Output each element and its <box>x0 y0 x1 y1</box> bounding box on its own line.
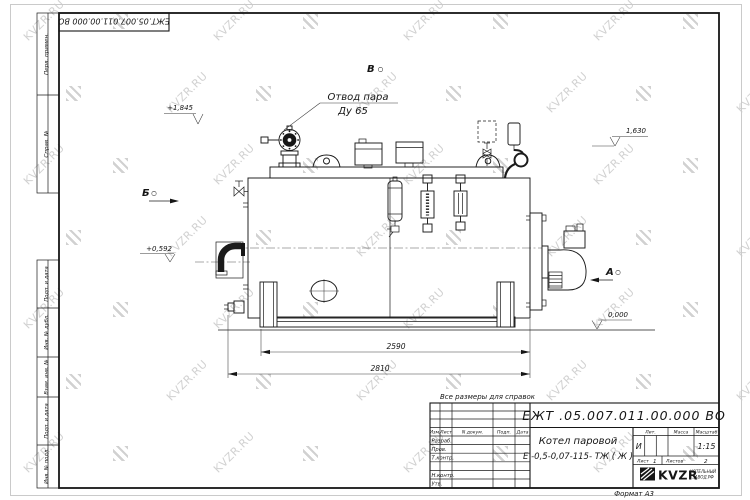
tb-col-massa: Масса <box>674 430 689 436</box>
tb-row-n-kontr: Н.контр. <box>432 473 455 479</box>
tb-row-razrab: Разраб. <box>432 439 452 445</box>
elevation-left-text: +0,592 <box>146 245 172 253</box>
tb-listov-value: 2 <box>704 459 708 465</box>
left-margin-column: Перв. примен. Справ. № Подп. и дата Инв.… <box>37 13 59 488</box>
view-label-v: В <box>367 64 383 75</box>
lifting-lug-right <box>476 155 500 167</box>
tb-designation: ЕЖТ .05.007.011.00.000 ВО <box>522 408 726 423</box>
steam-outlet-callout: Отвод пара Ду 65 <box>284 92 398 130</box>
elevation-ground-text: 0,000 <box>608 311 629 319</box>
top-designation-text: ЕЖТ.05.007.011.00.000 ВО <box>58 17 170 26</box>
elevation-valve-top-text: +1,845 <box>167 104 193 112</box>
tb-listov-label: Листов <box>665 459 683 465</box>
elevation-right: 1,630 <box>592 127 648 146</box>
control-box-2 <box>396 142 423 167</box>
boiler-drawing: Отвод пара Ду 65 В Б А <box>140 64 655 378</box>
view-b-text: Б <box>142 188 150 199</box>
tb-header-list: Лист <box>439 430 452 436</box>
tb-list-value: 1 <box>653 459 657 465</box>
margin-label-inv-dubl: Инв. № дубл. <box>44 314 50 350</box>
tb-header-data: Дата <box>516 430 529 436</box>
tb-scale-value: 1:15 <box>698 442 716 451</box>
margin-label-sprav-no: Справ. № <box>44 130 50 157</box>
kvzr-logo-sub2: ЗАВОД.РФ <box>692 475 714 480</box>
support-legs <box>260 282 514 327</box>
view-v-text: В <box>367 64 375 75</box>
format-label: Формат А3 <box>614 490 654 498</box>
skid-rail <box>262 317 515 327</box>
lifting-lug-left <box>313 155 340 167</box>
callout-line1: Отвод пара <box>328 92 389 103</box>
elevation-ground: 0,000 <box>592 311 632 329</box>
boiler-body <box>248 167 530 318</box>
shell-top-left-valve <box>234 181 248 196</box>
tb-col-masshtab: Масштаб <box>696 430 718 436</box>
reference-note: Все размеры для справок <box>440 393 536 401</box>
margin-label-podp-data-2: Подп. и дата <box>44 403 50 438</box>
elevation-left: +0,592 <box>140 245 175 262</box>
tb-row-t-kontr: Т.контр. <box>432 456 454 462</box>
tb-col-lit: Лит. <box>644 430 656 436</box>
view-label-b: Б <box>142 188 179 203</box>
dimension-2590: 2590 <box>261 319 530 356</box>
tb-row-prov: Пров. <box>432 447 447 453</box>
tb-product-model: Е -0,5-0,07-115- ТЖ ( Ж ) <box>523 452 633 462</box>
tb-list-label: Лист <box>636 459 649 465</box>
margin-label-perv-primen: Перв. примен. <box>44 33 50 75</box>
callout-line2: Ду 65 <box>337 106 368 117</box>
sight-glass <box>387 177 402 237</box>
dimension-2590-text: 2590 <box>386 342 405 351</box>
elevation-right-text: 1,630 <box>626 127 647 135</box>
water-level-gauge-2 <box>454 175 467 230</box>
margin-label-podp-data-1: Подп. и дата <box>44 266 50 301</box>
kvzr-logo: KVZR КОТЕЛЬНЫЙ ЗАВОД.РФ <box>640 468 716 483</box>
boiler-drawing-svg: Перв. примен. Справ. № Подп. и дата Инв.… <box>0 0 750 500</box>
pressure-gauge-siphon <box>505 123 528 178</box>
margin-label-inv-podl: Инв. № подл. <box>44 448 50 484</box>
top-designation-stamp: ЕЖТ.05.007.011.00.000 ВО <box>58 13 170 31</box>
burner <box>542 224 586 290</box>
elevation-valve-top: +1,845 <box>164 104 203 124</box>
dimension-2810-text: 2810 <box>370 364 389 373</box>
tb-header-n-dokum: N докум. <box>462 430 483 436</box>
drawing-sheet: KVZR.RUKVZR.RUKVZR.RUKVZR.RUKVZR.RUKVZR.… <box>0 0 750 500</box>
hidden-component-dashed <box>478 121 496 142</box>
kvzr-logo-sub1: КОТЕЛЬНЫЙ <box>690 469 716 474</box>
title-block: Изм. Лист N докум. Подп. Дата Разраб. Пр… <box>430 403 726 498</box>
left-wall-fittings <box>216 203 248 313</box>
water-level-gauge-1 <box>421 175 434 232</box>
tb-lit-value: И <box>636 442 642 451</box>
view-a-text: А <box>605 267 614 278</box>
manhole <box>309 279 339 303</box>
view-label-a: А <box>590 267 620 282</box>
control-box-1 <box>355 139 382 168</box>
tb-header-izm: Изм. <box>430 430 441 436</box>
steam-outlet-valve <box>261 126 300 167</box>
tb-product-name: Котел паровой <box>539 436 618 447</box>
margin-label-vzam-inv: Взам. инв. № <box>44 359 50 394</box>
tb-header-podp: Подп. <box>497 430 511 436</box>
tb-row-utv: Утв. <box>432 482 443 488</box>
